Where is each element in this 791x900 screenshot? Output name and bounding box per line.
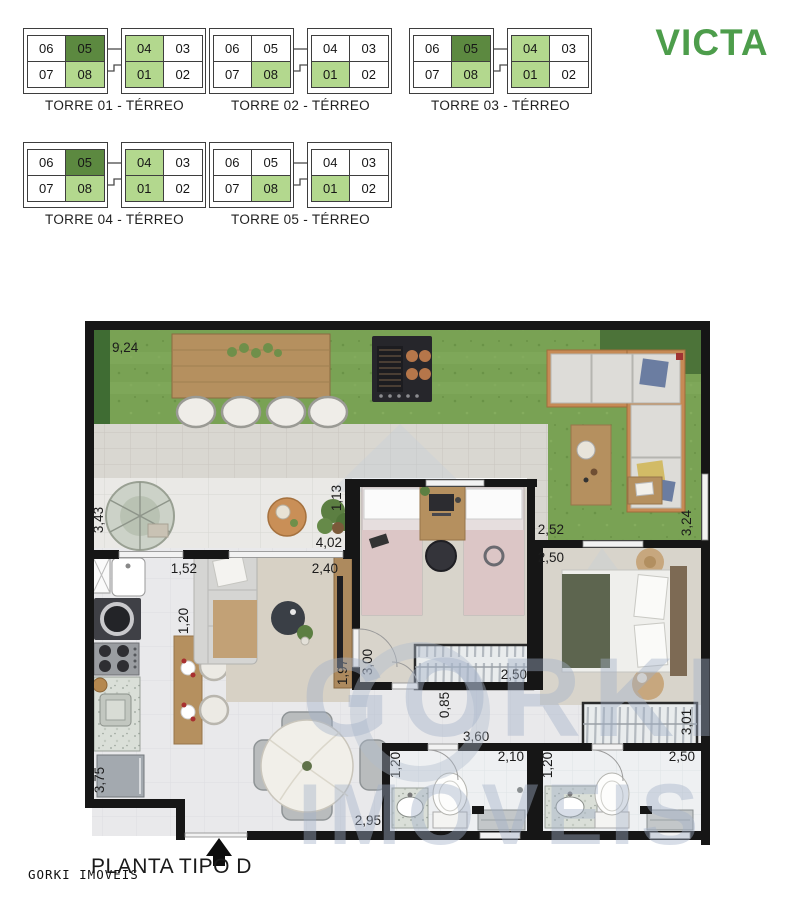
dim-bath1-w: 2,10 (498, 749, 524, 764)
dim-tv-w: 1,97 (335, 659, 350, 685)
outdoor-side-table (628, 477, 662, 504)
dim-terrace-h: 3,43 (91, 507, 106, 533)
master-furniture (562, 548, 697, 745)
dim-side-h: 3,24 (679, 509, 694, 536)
terrace-side-table (268, 498, 306, 536)
dim-living-w: 2,95 (355, 813, 381, 828)
dim-kitchen-h: 3,75 (92, 767, 107, 793)
kitchen-fixtures (93, 557, 145, 797)
dim-hall-h: 0,85 (437, 692, 452, 718)
dim-bed2-right-a: 2,52 (538, 522, 564, 537)
dim-bath2-h: 1,20 (540, 752, 555, 778)
dim-terrace-w: 4,02 (316, 535, 342, 550)
dim-kitchen-opening: 1,52 (171, 561, 197, 576)
dim-island-w: 1,20 (176, 608, 191, 634)
dim-stub-h: 1,13 (329, 485, 344, 511)
dim-master-ward-h: 3,01 (679, 709, 694, 735)
floor-plan: 9,24 3,43 1,13 4,02 1,52 2,40 1,20 1,97 … (0, 0, 791, 900)
dim-bed2-right-b: 2,50 (538, 550, 564, 565)
dim-bath2-w: 2,50 (669, 749, 695, 764)
plan-title: PLANTA TIPO D (91, 855, 252, 879)
dim-bed2-ward-w: 2,50 (501, 667, 527, 682)
dim-living-opening: 2,40 (312, 561, 338, 576)
hanging-egg-chair (106, 482, 174, 550)
dim-garden-w: 9,24 (112, 340, 139, 355)
bbq-grill (372, 336, 432, 402)
outdoor-coffee-table (571, 425, 611, 505)
garden-dining-table (172, 334, 347, 427)
